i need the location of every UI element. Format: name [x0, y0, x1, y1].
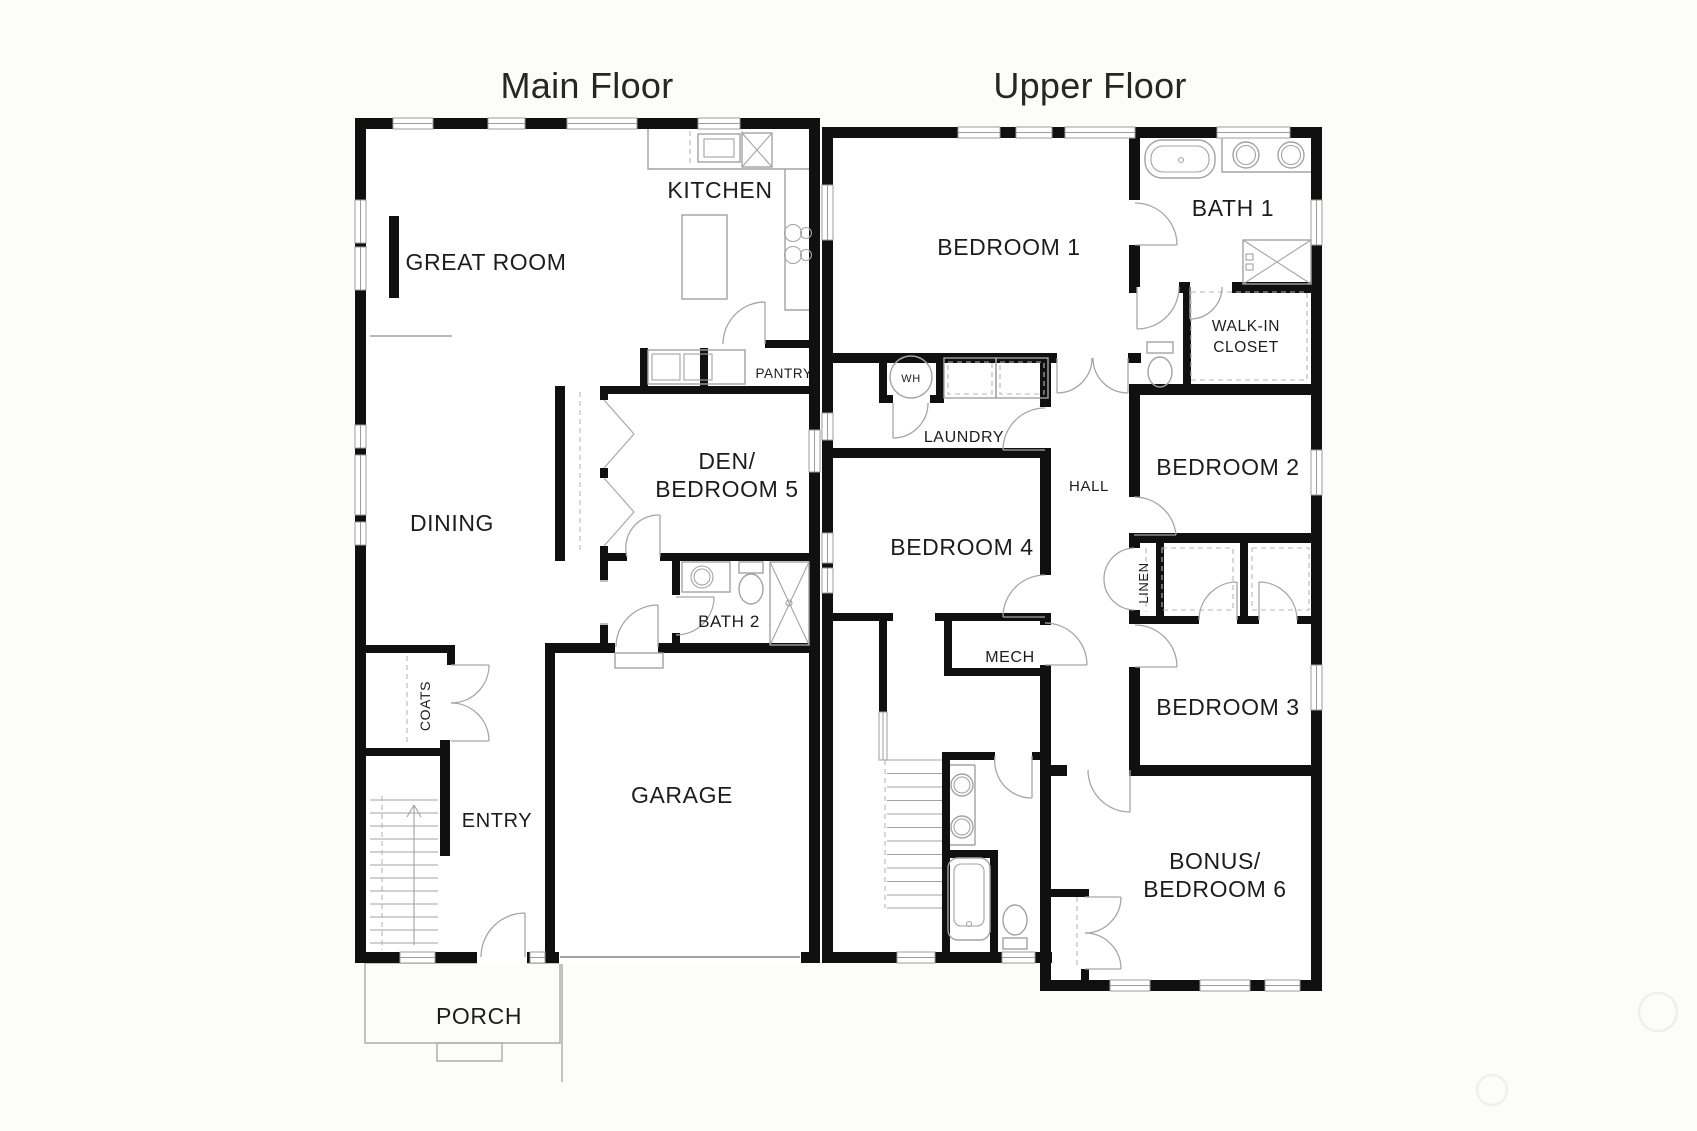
- room-label-bedroom2: BEDROOM 2: [1156, 454, 1299, 480]
- room-label-den-line1: DEN/: [698, 448, 755, 474]
- floor-plan-page: Main Floor: [0, 0, 1697, 1131]
- room-label-bedroom3: BEDROOM 3: [1156, 694, 1299, 720]
- room-label-bath1: BATH 1: [1192, 195, 1274, 221]
- room-label-coats: COATS: [417, 681, 433, 731]
- room-label-pantry: PANTRY: [755, 366, 812, 381]
- main-floor-plan: Main Floor: [355, 65, 820, 1082]
- room-label-den-line2: BEDROOM 5: [655, 476, 798, 502]
- room-label-porch: PORCH: [436, 1003, 522, 1029]
- room-label-great-room: GREAT ROOM: [405, 249, 566, 275]
- room-label-bedroom1: BEDROOM 1: [937, 234, 1080, 260]
- room-label-mech: MECH: [985, 649, 1035, 666]
- room-label-entry: ENTRY: [462, 810, 532, 832]
- room-label-linen: LINEN: [1136, 562, 1151, 603]
- main-floor-title: Main Floor: [500, 65, 673, 106]
- room-label-walkin-line1: WALK-IN: [1212, 318, 1280, 335]
- room-label-laundry: LAUNDRY: [924, 429, 1004, 446]
- room-label-walkin-line2: CLOSET: [1213, 339, 1279, 356]
- room-label-hall: HALL: [1069, 478, 1109, 495]
- room-label-dining: DINING: [410, 510, 494, 536]
- room-label-bonus-line2: BEDROOM 6: [1143, 876, 1286, 902]
- watermark-circle: [1477, 993, 1677, 1105]
- room-label-bedroom4: BEDROOM 4: [890, 534, 1033, 560]
- room-label-bath2: BATH 2: [698, 612, 760, 631]
- upper-floor-plan: Upper Floor: [822, 65, 1322, 991]
- room-label-kitchen: KITCHEN: [667, 177, 772, 203]
- floor-plan-canvas: Main Floor: [0, 0, 1697, 1131]
- room-label-garage: GARAGE: [631, 782, 733, 808]
- room-label-wh: WH: [901, 373, 921, 385]
- room-label-bonus-line1: BONUS/: [1169, 848, 1261, 874]
- upper-floor-title: Upper Floor: [993, 65, 1186, 106]
